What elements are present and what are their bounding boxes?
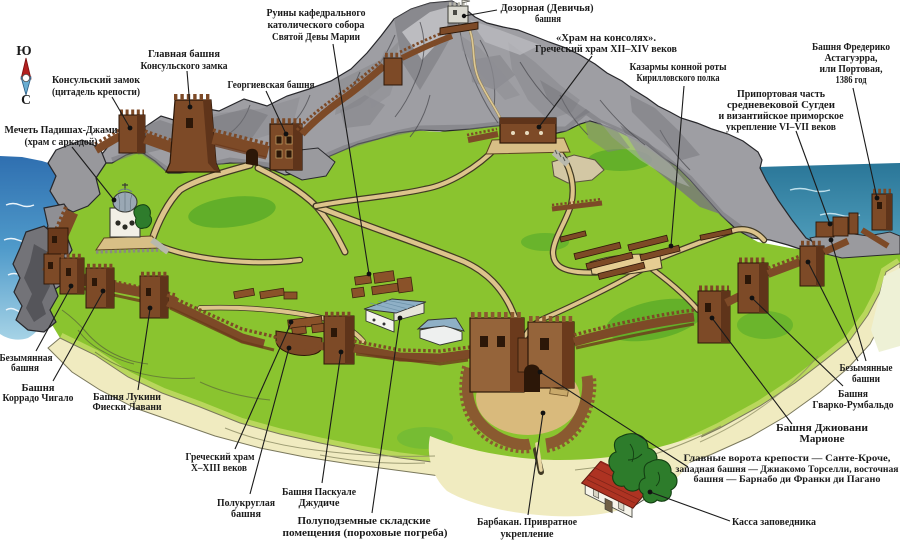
svg-text:или Портовая,: или Портовая, <box>820 64 883 75</box>
svg-text:Греческий храм XII–XIV веков: Греческий храм XII–XIV веков <box>535 44 677 55</box>
svg-text:Консульский замок: Консульский замок <box>52 75 140 86</box>
svg-text:Фиески Лавани: Фиески Лавани <box>93 402 162 413</box>
svg-text:Башня Джиовани: Башня Джиовани <box>776 423 868 434</box>
svg-text:С: С <box>21 92 31 107</box>
svg-text:Ю: Ю <box>16 43 31 58</box>
svg-text:Марионе: Марионе <box>800 434 845 445</box>
svg-text:Георгиевская башня: Георгиевская башня <box>228 80 315 91</box>
svg-text:Коррадо Чигало: Коррадо Чигало <box>3 393 74 404</box>
svg-text:и византийское приморское: и византийское приморское <box>719 111 844 122</box>
svg-text:укрепление: укрепление <box>501 529 554 540</box>
svg-text:укрепление VI–VII веков: укрепление VI–VII веков <box>726 122 836 133</box>
svg-text:Греческий храм: Греческий храм <box>186 452 255 463</box>
svg-text:(храм с аркадой): (храм с аркадой) <box>25 137 98 148</box>
svg-text:Гварко-Румбальдо: Гварко-Румбальдо <box>813 400 894 411</box>
svg-text:Барбакан. Привратное: Барбакан. Привратное <box>477 517 577 528</box>
svg-text:Святой Девы Марии: Святой Девы Марии <box>272 32 360 43</box>
svg-text:Башня Фредерико: Башня Фредерико <box>812 42 890 53</box>
svg-text:башня: башня <box>535 14 561 25</box>
svg-text:башня: башня <box>11 363 39 374</box>
svg-text:башни: башни <box>852 374 880 385</box>
svg-text:X–XIII веков: X–XIII веков <box>191 463 247 474</box>
svg-text:Полукруглая: Полукруглая <box>217 498 275 509</box>
svg-text:Джудиче: Джудиче <box>299 498 340 509</box>
svg-text:«Храм на консолях».: «Храм на консолях». <box>556 33 656 44</box>
svg-text:башня — Барнабо ди Франки ди П: башня — Барнабо ди Франки ди Пагано <box>694 474 881 485</box>
svg-text:Безымянные: Безымянные <box>840 363 893 374</box>
svg-text:Мечеть Падишах-Джами: Мечеть Падишах-Джами <box>5 125 118 136</box>
svg-text:Башня Паскуале: Башня Паскуале <box>282 487 356 498</box>
svg-text:Астагуэрра,: Астагуэрра, <box>825 53 878 64</box>
svg-text:Полуподземные складские: Полуподземные складские <box>298 516 431 527</box>
svg-text:Припортовая часть: Припортовая часть <box>737 89 826 100</box>
svg-text:Дозорная (Девичья): Дозорная (Девичья) <box>501 3 594 14</box>
svg-text:1386 год: 1386 год <box>836 75 868 86</box>
svg-text:Главные ворота крепости — Сант: Главные ворота крепости — Санте-Кроче, <box>684 453 892 464</box>
svg-text:(цитадель крепости): (цитадель крепости) <box>52 87 140 98</box>
svg-text:башня: башня <box>231 509 261 520</box>
svg-text:Казармы конной роты: Казармы конной роты <box>630 62 727 73</box>
svg-text:Главная башня: Главная башня <box>148 49 220 60</box>
svg-text:Башня: Башня <box>838 389 868 400</box>
svg-text:Руины кафедрального: Руины кафедрального <box>267 8 366 19</box>
svg-text:Консульского замка: Консульского замка <box>141 61 228 72</box>
svg-text:Кирилловского полка: Кирилловского полка <box>637 73 720 84</box>
svg-text:средневековой Сугдеи: средневековой Сугдеи <box>727 100 835 111</box>
svg-text:Касса заповедника: Касса заповедника <box>732 517 816 528</box>
svg-text:католического собора: католического собора <box>268 20 365 31</box>
svg-text:помещения (пороховые погреба): помещения (пороховые погреба) <box>283 528 448 539</box>
